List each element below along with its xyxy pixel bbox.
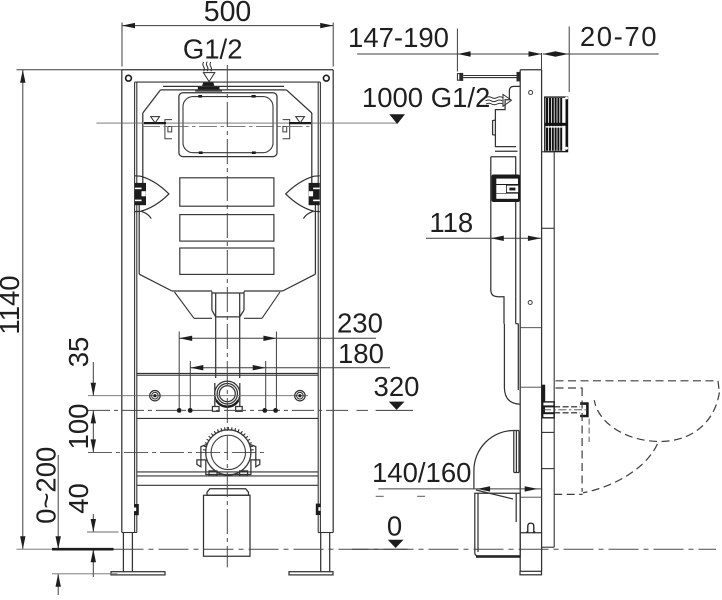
svg-text:147-190: 147-190 (348, 22, 449, 53)
svg-text:118: 118 (429, 207, 473, 238)
svg-text:100: 100 (63, 404, 94, 450)
svg-text:140/160: 140/160 (372, 457, 471, 488)
svg-text:G1/2: G1/2 (431, 82, 491, 113)
svg-text:0~200: 0~200 (31, 447, 62, 524)
svg-text:20-70: 20-70 (580, 21, 658, 52)
svg-text:0: 0 (387, 511, 402, 542)
svg-text:500: 500 (204, 0, 252, 28)
svg-text:G1/2: G1/2 (183, 34, 243, 65)
svg-text:40: 40 (63, 483, 94, 514)
svg-text:230: 230 (337, 308, 383, 339)
svg-text:180: 180 (338, 338, 384, 369)
svg-text:35: 35 (63, 337, 94, 368)
svg-text:320: 320 (374, 371, 420, 402)
svg-text:1140: 1140 (0, 275, 25, 334)
svg-text:1000: 1000 (362, 82, 423, 113)
